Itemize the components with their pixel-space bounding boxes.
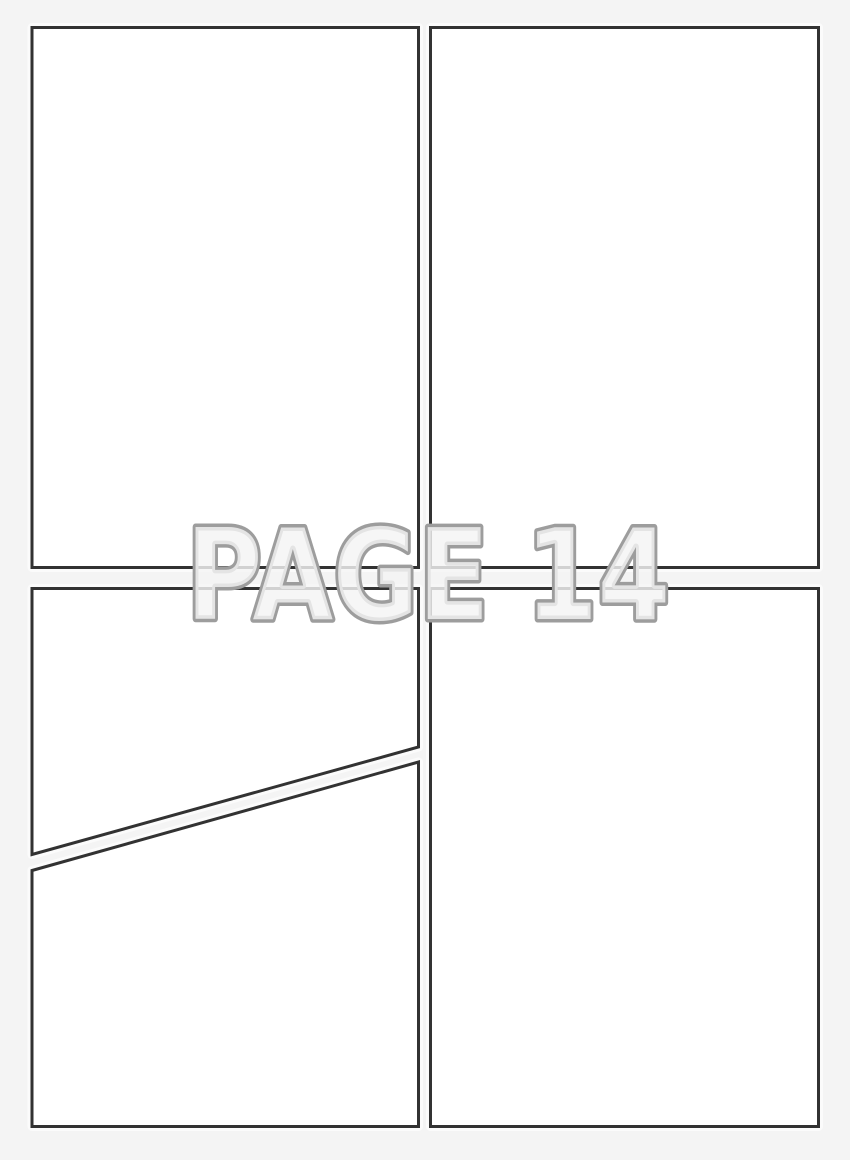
panel-border	[431, 28, 819, 568]
panel-border	[431, 589, 819, 1127]
panel-top-right	[431, 28, 819, 568]
panel-border	[32, 28, 419, 568]
panel-top-left	[32, 28, 419, 568]
panel-bottom-right	[431, 589, 819, 1127]
comic-page-template: PAGE 14	[0, 0, 850, 1160]
panel-layout: PAGE 14	[0, 0, 850, 1160]
page-number-watermark: PAGE 14	[186, 502, 670, 649]
